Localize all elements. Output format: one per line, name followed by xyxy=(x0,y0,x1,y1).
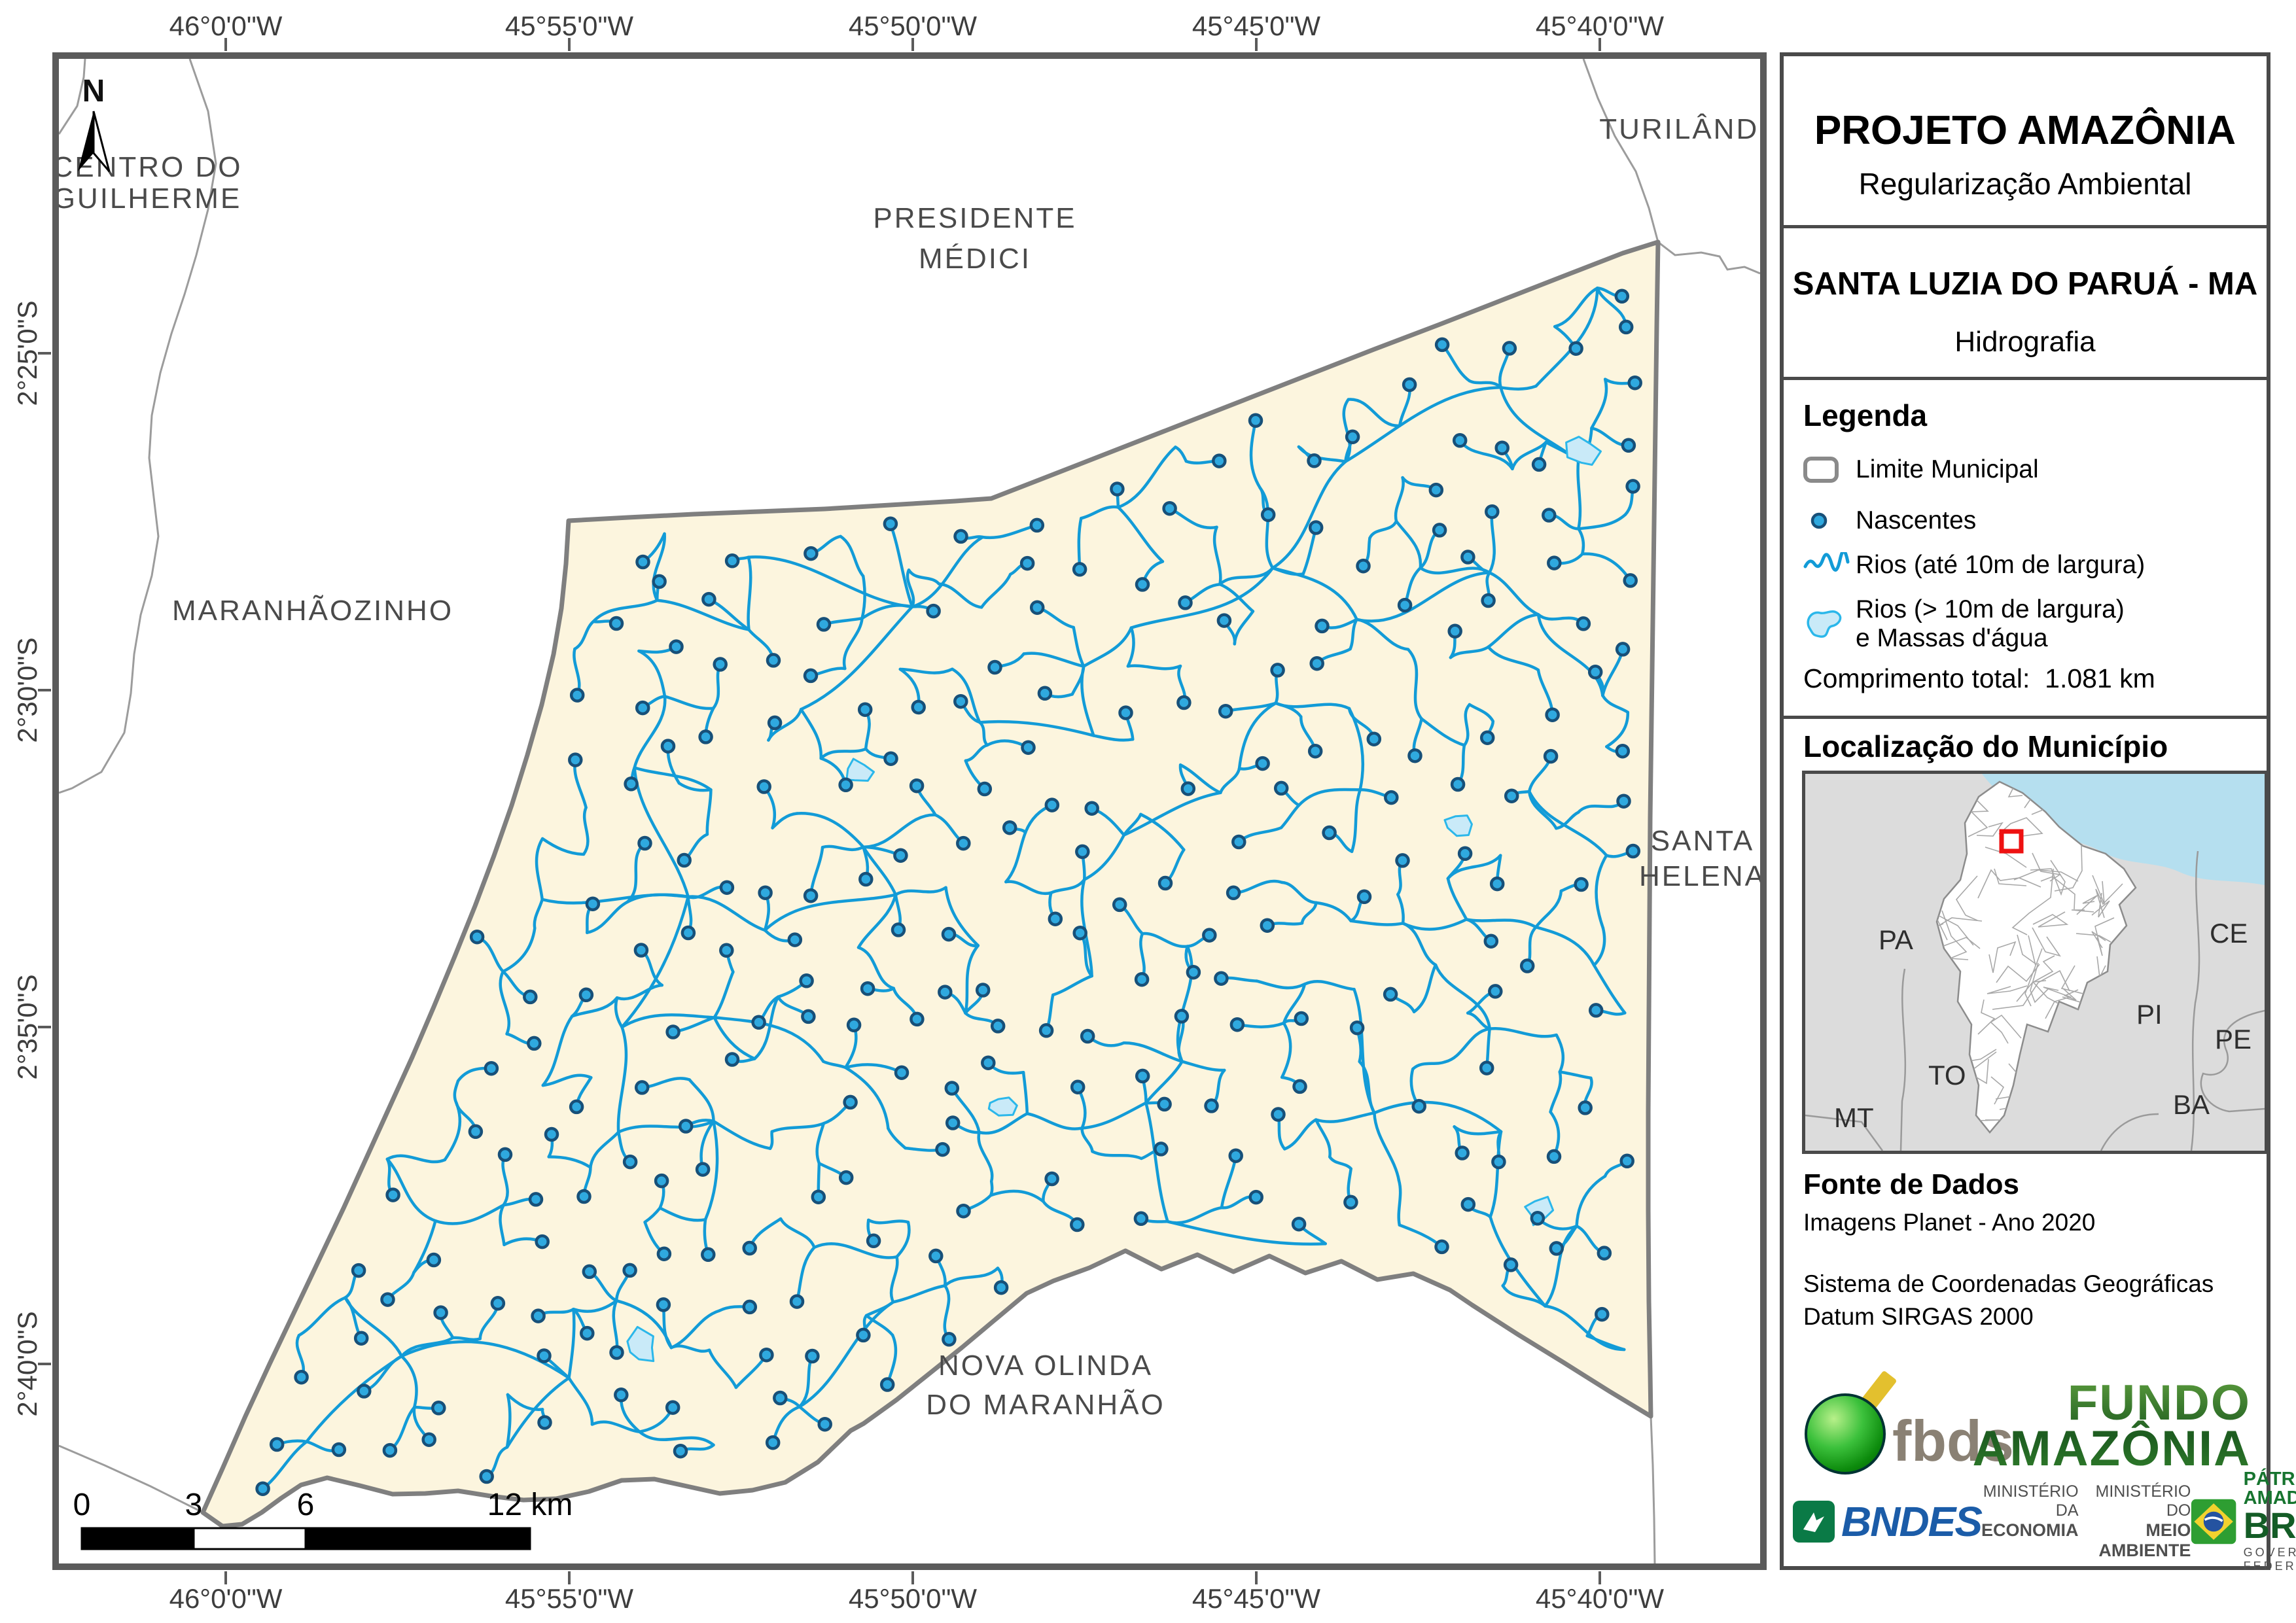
inset-state-label: PE xyxy=(2215,1024,2252,1055)
nascente-dot xyxy=(1590,1004,1602,1016)
axis-label-top: 45°55'0"W xyxy=(484,10,654,42)
legend-total-label: Comprimento total: xyxy=(1803,663,2030,693)
nascente-dot xyxy=(1625,574,1636,586)
legend-label: Nascentes xyxy=(1856,506,1976,535)
axis-label-bottom: 46°0'0"W xyxy=(141,1583,311,1614)
nascente-dot xyxy=(1111,483,1123,495)
nascente-dot xyxy=(760,887,771,899)
place-label: MÉDICI xyxy=(919,243,1031,275)
nascente-dot xyxy=(680,1121,692,1132)
municipality-boundary xyxy=(203,242,1658,1526)
nascente-dot xyxy=(1086,803,1098,814)
nascente-dot xyxy=(355,1333,367,1344)
nascente-dot xyxy=(911,780,923,792)
axis-tick-left xyxy=(38,1026,51,1028)
nascente-dot xyxy=(1436,1241,1448,1253)
nascente-dot xyxy=(1351,1022,1363,1034)
axis-label-top: 46°0'0"W xyxy=(141,10,311,42)
place-label: HELENA xyxy=(1639,860,1760,892)
place-label: DO MARANHÃO xyxy=(926,1388,1165,1421)
nascente-dot xyxy=(1617,745,1629,757)
scale-bar-label: 6 xyxy=(297,1488,315,1522)
axis-label-bottom: 45°45'0"W xyxy=(1171,1583,1341,1614)
nascente-dot xyxy=(1492,1156,1504,1168)
nascente-dot xyxy=(702,1249,714,1261)
nascente-dot xyxy=(791,1296,803,1308)
nascente-dot xyxy=(1436,339,1448,351)
nascente-dot xyxy=(715,659,726,671)
nascente-dot xyxy=(1309,455,1320,466)
inset-state-label: TO xyxy=(1928,1060,1966,1091)
legend-label: Rios (até 10m de largura) xyxy=(1856,551,2145,580)
scale-bar: 03612 km xyxy=(73,1488,573,1549)
nascente-dot xyxy=(423,1434,435,1446)
nascente-dot xyxy=(581,1327,593,1339)
nascente-dot xyxy=(353,1265,364,1276)
nascente-dot xyxy=(939,986,951,998)
nascente-dot xyxy=(1629,377,1641,389)
nascente-dot xyxy=(486,1062,497,1074)
nascente-dot xyxy=(296,1371,308,1383)
legend-swatch-rios_maior xyxy=(1803,605,1856,643)
nascente-dot xyxy=(1120,707,1132,719)
nascente-dot xyxy=(946,1083,958,1094)
nascente-swatch-icon xyxy=(1803,506,1843,535)
nascente-dot xyxy=(499,1149,511,1161)
nascente-dot xyxy=(1578,618,1589,629)
nascente-dot xyxy=(382,1294,394,1306)
nascente-dot xyxy=(1155,1143,1167,1155)
nascente-dot xyxy=(524,991,536,1003)
nascente-dot xyxy=(805,890,817,901)
patria-amada-brasil-logo: PÁTRIA AMADA BRASIL GOVERNO FEDERAL xyxy=(2191,1470,2296,1573)
nascente-dot xyxy=(1164,502,1176,514)
nascente-dot xyxy=(624,1265,636,1276)
nascente-dot xyxy=(1215,973,1227,985)
nascente-dot xyxy=(813,1191,824,1203)
axis-label-bottom: 45°50'0"W xyxy=(828,1583,998,1614)
nascente-dot xyxy=(571,1101,582,1113)
nascente-dot xyxy=(1230,1150,1242,1162)
axis-label-left: 2°25'0"S xyxy=(12,268,41,438)
nascente-dot xyxy=(937,1143,949,1155)
nascente-dot xyxy=(626,778,637,790)
nascente-dot xyxy=(1180,597,1192,608)
nascente-dot xyxy=(1023,742,1034,754)
nascente-dot xyxy=(1551,1242,1563,1254)
bndes-icon xyxy=(1793,1501,1835,1543)
nascente-dot xyxy=(610,618,622,629)
nascente-dot xyxy=(636,1081,648,1093)
section-divider xyxy=(1784,716,2267,719)
nascente-dot xyxy=(896,1067,908,1079)
legend-item-rios_maior: Rios (> 10m de largura)e Massas d'água xyxy=(1803,595,2248,652)
government-logos-row: BNDES MINISTÉRIO DAECONOMIAMINISTÉRIO DO… xyxy=(1793,1489,2257,1554)
nascente-dot xyxy=(721,882,733,894)
nascente-dot xyxy=(1262,920,1273,932)
nascente-dot xyxy=(1481,1062,1492,1074)
nascente-dot xyxy=(845,1096,857,1108)
nascente-dot xyxy=(667,1402,679,1414)
nascente-dot xyxy=(1082,1030,1093,1042)
hydrography-map: CENTRO DOGUILHERMEPRESIDENTEMÉDICITURILÂ… xyxy=(59,59,1760,1563)
nascente-dot xyxy=(1114,899,1125,911)
nascente-dot xyxy=(1159,877,1171,889)
nascente-dot xyxy=(881,1379,893,1391)
nascente-dot xyxy=(333,1444,345,1456)
nascente-dot xyxy=(1046,799,1058,811)
nascente-dot xyxy=(624,1156,636,1168)
nascente-dot xyxy=(1504,342,1515,354)
nascente-dot xyxy=(726,555,738,567)
nascente-dot xyxy=(859,704,871,716)
nascente-dot xyxy=(1413,1100,1425,1112)
axis-label-top: 45°40'0"W xyxy=(1515,10,1685,42)
axis-label-bottom: 45°40'0"W xyxy=(1515,1583,1685,1614)
nascente-dot xyxy=(992,1020,1004,1032)
nascente-dot xyxy=(1596,1308,1608,1320)
nascente-dot xyxy=(1459,848,1471,860)
nascente-dot xyxy=(1182,783,1194,795)
legend-label: Limite Municipal xyxy=(1856,455,2039,484)
nascente-dot xyxy=(1159,1098,1171,1110)
nascente-dot xyxy=(977,985,989,996)
nascente-dot xyxy=(587,898,599,910)
river-line-swatch-icon xyxy=(1803,552,1852,578)
brasil-flag-icon xyxy=(2191,1496,2236,1547)
nascente-dot xyxy=(979,783,991,795)
nascente-dot xyxy=(1040,1024,1052,1036)
nascente-dot xyxy=(546,1128,557,1140)
nascente-dot xyxy=(1462,551,1474,563)
nascente-dot xyxy=(989,661,1001,673)
nascente-dot xyxy=(1404,379,1415,391)
nascente-dot xyxy=(840,779,852,791)
nascente-dot xyxy=(1227,887,1239,899)
inset-municipality-marker xyxy=(2002,831,2021,851)
nascente-dot xyxy=(1310,522,1322,534)
nascente-dot xyxy=(530,1193,542,1205)
nascente-dot xyxy=(584,1266,595,1278)
fundo-amazonia-line2: AMAZÔNIA xyxy=(1972,1426,2251,1472)
nascente-dot xyxy=(1257,758,1269,769)
nascente-dot xyxy=(697,1164,709,1176)
nascente-dot xyxy=(1213,455,1225,467)
nascente-dot xyxy=(753,1017,765,1028)
nascente-dot xyxy=(1454,434,1466,446)
nascente-dot xyxy=(1548,1151,1560,1162)
nascente-dot xyxy=(943,1333,955,1345)
nascente-dot xyxy=(1031,519,1043,531)
nascente-dot xyxy=(758,781,770,793)
nascente-dot xyxy=(492,1297,504,1309)
nascente-dot xyxy=(1506,790,1517,802)
nascente-dot xyxy=(1176,1010,1188,1022)
nascente-dot xyxy=(637,702,648,714)
data-source-line: Imagens Planet - Ano 2020 xyxy=(1803,1209,2095,1236)
map-document: { "panel": { "title": "PROJETO AMAZÔNIA"… xyxy=(0,0,2296,1623)
nascente-dot xyxy=(1548,557,1560,569)
legend-total: Comprimento total: 1.081 km xyxy=(1803,663,2155,694)
bndes-text: BNDES xyxy=(1841,1497,1981,1546)
inset-map: PATOMTPICEPEBA xyxy=(1805,774,2265,1151)
location-heading: Localização do Município xyxy=(1803,729,2168,764)
nascente-dot xyxy=(1076,846,1088,858)
north-arrow-label: N xyxy=(82,74,105,109)
nascente-dot xyxy=(1491,878,1503,890)
nascente-dot xyxy=(1206,1100,1218,1111)
nascente-dot xyxy=(1576,879,1587,890)
place-label: NOVA OLINDA xyxy=(938,1350,1153,1382)
nascente-dot xyxy=(1505,1259,1517,1270)
nascente-dot xyxy=(1533,459,1545,470)
nascente-dot xyxy=(768,654,779,666)
nascente-dot xyxy=(1452,778,1464,790)
nascente-dot xyxy=(1262,509,1274,521)
axis-tick-top xyxy=(911,38,914,51)
nascente-dot xyxy=(955,531,967,542)
nascente-dot xyxy=(1570,343,1582,355)
legend-item-limite: Limite Municipal xyxy=(1803,455,2248,484)
nascente-dot xyxy=(384,1444,396,1456)
bndes-logo: BNDES xyxy=(1793,1497,1981,1546)
nascente-dot xyxy=(1616,290,1628,302)
nascente-dot xyxy=(1521,960,1533,972)
nascente-dot xyxy=(1399,599,1411,611)
nascente-dot xyxy=(1233,836,1245,848)
nascente-dot xyxy=(1368,733,1380,745)
legend-swatch-limite xyxy=(1803,457,1856,483)
nascente-dot xyxy=(860,873,872,885)
nascente-dot xyxy=(1220,705,1231,717)
nascente-dot xyxy=(1627,480,1639,492)
nascente-dot xyxy=(1489,985,1501,997)
nascente-dot xyxy=(955,695,966,707)
nascente-dot xyxy=(1347,431,1358,443)
fundo-amazonia-logo: FUNDO AMAZÔNIA xyxy=(1972,1380,2251,1472)
nascente-dot xyxy=(911,1013,923,1025)
inset-state-label: CE xyxy=(2210,918,2248,949)
axis-label-left: 2°30'0"S xyxy=(12,605,41,775)
nascente-dot xyxy=(679,854,690,866)
data-source-heading: Fonte de Dados xyxy=(1803,1168,2019,1201)
nascente-dot xyxy=(1316,620,1328,632)
nascente-dot xyxy=(675,1445,686,1457)
nascente-dot xyxy=(1296,1013,1307,1024)
nascente-dot xyxy=(1486,506,1498,517)
inset-state-label: MT xyxy=(1834,1102,1874,1133)
axis-label-top: 45°45'0"W xyxy=(1171,10,1341,42)
nascente-dot xyxy=(639,837,651,849)
nascente-dot xyxy=(726,1054,738,1066)
nascente-dot xyxy=(539,1417,551,1429)
nascente-dot xyxy=(995,1282,1007,1293)
inset-state-label: BA xyxy=(2173,1089,2210,1120)
nascente-dot xyxy=(958,1205,970,1217)
place-label: MARANHÃOZINHO xyxy=(172,594,453,627)
nascente-dot xyxy=(862,983,874,994)
axis-tick-top xyxy=(1598,38,1601,51)
inset-state-label: PI xyxy=(2136,999,2163,1030)
nascente-dot xyxy=(1021,557,1033,569)
legend-item-nascentes: Nascentes xyxy=(1803,506,2248,535)
nascente-dot xyxy=(1358,891,1370,903)
nascente-dot xyxy=(1074,563,1086,575)
nascente-dot xyxy=(1294,1081,1306,1092)
nascente-dot xyxy=(885,753,897,765)
axis-tick-left xyxy=(38,1363,51,1365)
municipality-title: SANTA LUZIA DO PARUÁ - MA xyxy=(1784,266,2267,302)
patria-line2: BRASIL xyxy=(2244,1508,2296,1543)
nascente-dot xyxy=(569,754,581,766)
nascente-dot xyxy=(1589,666,1601,678)
nascente-dot xyxy=(1275,782,1287,794)
nascente-dot xyxy=(358,1386,370,1397)
nascente-dot xyxy=(1074,927,1086,939)
nascente-dot xyxy=(1397,854,1409,866)
nascente-dot xyxy=(1004,822,1016,833)
section-divider xyxy=(1784,377,2267,380)
nascente-dot xyxy=(930,1250,942,1262)
nascente-dot xyxy=(1324,827,1335,839)
nascente-dot xyxy=(1543,510,1555,521)
nascente-dot xyxy=(1039,688,1051,699)
nascente-dot xyxy=(1137,578,1148,590)
nascente-dot xyxy=(578,1191,590,1202)
nascente-dot xyxy=(720,945,732,956)
nascente-dot xyxy=(947,1117,959,1129)
data-source-line: Datum SIRGAS 2000 xyxy=(1803,1303,2034,1331)
axis-tick-top xyxy=(1255,38,1258,51)
nascente-dot xyxy=(1178,697,1190,708)
legend-swatch-rios_ate xyxy=(1803,552,1856,578)
axis-tick-left xyxy=(38,689,51,691)
nascente-dot xyxy=(801,975,813,986)
nascente-dot xyxy=(819,1418,831,1430)
nascente-dot xyxy=(769,717,781,729)
nascente-dot xyxy=(1623,440,1634,451)
nascente-dot xyxy=(1311,657,1323,669)
nascente-dot xyxy=(433,1402,444,1414)
nascente-dot xyxy=(1135,1213,1147,1225)
axis-label-top: 45°50'0"W xyxy=(828,10,998,42)
axis-label-left: 2°40'0"S xyxy=(12,1279,41,1449)
nascente-dot xyxy=(789,934,801,946)
legend-heading: Legenda xyxy=(1803,398,1927,433)
nascente-dot xyxy=(982,1057,994,1069)
patria-line1: PÁTRIA AMADA xyxy=(2244,1470,2296,1508)
nascente-dot xyxy=(703,593,715,605)
nascente-dot xyxy=(1203,930,1215,941)
nascente-dot xyxy=(744,1242,756,1254)
axis-tick-bottom xyxy=(568,1571,571,1584)
nascente-dot xyxy=(1598,1248,1610,1259)
scale-bar-label: 3 xyxy=(185,1488,203,1522)
place-label: SANTA xyxy=(1651,825,1754,857)
nascente-dot xyxy=(1483,595,1494,606)
patria-line3: GOVERNO FEDERAL xyxy=(2244,1546,2296,1573)
layout-panel: PROJETO AMAZÔNIA Regularização Ambiental… xyxy=(1780,52,2270,1570)
nascente-dot xyxy=(470,1126,482,1138)
nascente-dot xyxy=(806,1350,818,1362)
nascente-dot xyxy=(271,1439,283,1450)
ministries: MINISTÉRIO DAECONOMIAMINISTÉRIO DOMEIO A… xyxy=(1981,1482,2191,1561)
nascente-dot xyxy=(615,1389,627,1401)
nascente-dot xyxy=(894,850,906,862)
limite-municipal-swatch xyxy=(1803,457,1839,483)
nascente-dot xyxy=(1385,792,1397,803)
nascente-dot xyxy=(1309,745,1321,757)
nascente-dot xyxy=(767,1437,779,1448)
nascente-dot xyxy=(435,1307,447,1319)
nascente-dot xyxy=(1462,1198,1474,1210)
map-canvas: CENTRO DOGUILHERMEPRESIDENTEMÉDICITURILÂ… xyxy=(52,52,1767,1570)
nascente-dot xyxy=(682,927,694,939)
nascente-dot xyxy=(805,670,817,682)
place-label: GUILHERME xyxy=(59,183,241,215)
nascente-dot xyxy=(818,618,830,630)
nascente-dot xyxy=(1618,795,1630,807)
nascente-dot xyxy=(637,556,649,568)
nascente-dot xyxy=(1545,750,1557,762)
nascente-dot xyxy=(1485,935,1497,947)
nascente-dot xyxy=(533,1310,544,1322)
fundo-amazonia-line1: FUNDO xyxy=(1972,1380,2251,1426)
nascente-dot xyxy=(539,1350,550,1362)
nascente-dot xyxy=(1072,1081,1084,1093)
nascente-dot xyxy=(528,1038,540,1049)
axis-label-bottom: 45°55'0"W xyxy=(484,1583,654,1614)
nascente-dot xyxy=(802,1011,814,1022)
nascente-dot xyxy=(1481,732,1493,744)
nascente-dot xyxy=(1358,560,1369,572)
nascente-dot xyxy=(1218,615,1230,627)
nascente-dot xyxy=(1434,524,1445,536)
nascente-dot xyxy=(840,1172,852,1183)
location-inset-map: PATOMTPICEPEBA xyxy=(1802,771,2268,1154)
nascente-dot xyxy=(1136,973,1148,985)
nascente-dot xyxy=(928,605,940,617)
legend-swatch-nascentes xyxy=(1803,506,1856,535)
fbds-logo-sphere xyxy=(1805,1393,1886,1475)
nascente-dot xyxy=(1532,1212,1544,1224)
nascente-dot xyxy=(1385,988,1396,1000)
map-type-label: Hidrografia xyxy=(1784,326,2267,358)
ministry-logo: MINISTÉRIO DOMEIO AMBIENTE xyxy=(2096,1482,2191,1561)
place-label: PRESIDENTE xyxy=(873,202,1076,234)
nascente-dot xyxy=(1273,1109,1284,1121)
nascente-dot xyxy=(1580,1102,1591,1113)
nascente-dot xyxy=(805,548,817,559)
nascente-dot xyxy=(760,1349,772,1361)
nascente-dot xyxy=(1409,750,1421,761)
nascente-dot xyxy=(1345,1196,1356,1208)
scale-bar-label: 0 xyxy=(73,1488,91,1522)
nascente-dot xyxy=(1250,1191,1262,1203)
nascente-dot xyxy=(1231,1019,1243,1030)
place-label: TURILÂNDIA xyxy=(1599,113,1760,145)
project-title: PROJETO AMAZÔNIA xyxy=(1784,107,2267,154)
axis-tick-left xyxy=(38,352,51,355)
nascente-dot xyxy=(774,1392,786,1404)
nascente-dot xyxy=(857,1329,869,1341)
nascente-dot xyxy=(580,989,592,1001)
ministry-logo: MINISTÉRIO DAECONOMIA xyxy=(1981,1482,2079,1561)
axis-label-left: 2°35'0"S xyxy=(12,942,41,1112)
nascente-dot xyxy=(611,1347,623,1359)
scale-bar-label: 12 km xyxy=(487,1488,573,1522)
inset-state-label: PA xyxy=(1879,924,1913,955)
